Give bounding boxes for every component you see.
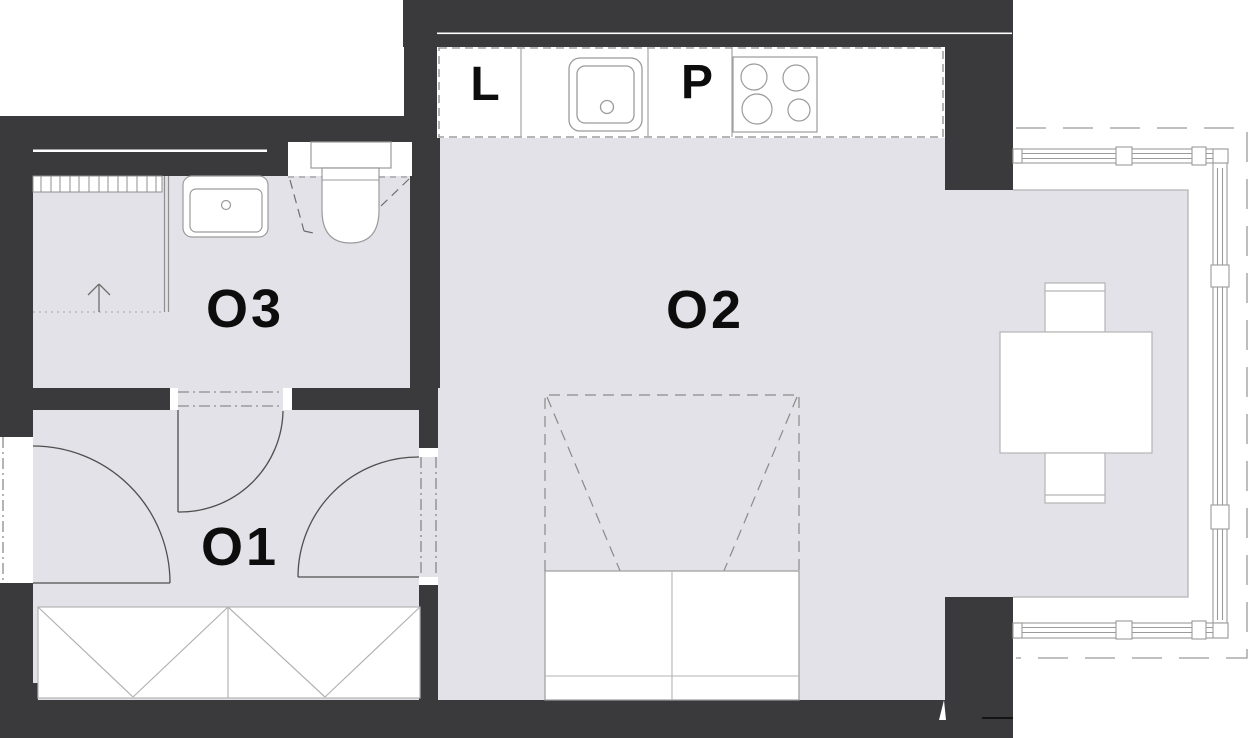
floor-plan-drawing: L P bbox=[0, 0, 1254, 738]
glazing-corner-top bbox=[1213, 149, 1228, 163]
wall-o3-o1-right bbox=[292, 388, 420, 410]
wall-seam-left bbox=[33, 150, 267, 152]
glazing-mullion-top-2 bbox=[1192, 147, 1206, 165]
wall-o1-o2-upper bbox=[419, 388, 438, 457]
wardrobe-body bbox=[38, 607, 420, 698]
glazing-right-frame bbox=[1213, 163, 1227, 623]
kitchen-sink-outer bbox=[569, 58, 642, 131]
glazing-mullion-top-1 bbox=[1116, 147, 1132, 165]
toilet-bowl bbox=[322, 168, 379, 243]
wall-bottom bbox=[0, 700, 1013, 738]
washbasin-icon bbox=[183, 176, 268, 237]
wall-o1-o2-lower bbox=[419, 585, 438, 700]
wall-top bbox=[403, 0, 1013, 47]
jamb-o3-door-left bbox=[170, 388, 178, 410]
dining-table bbox=[1000, 332, 1152, 453]
wall-left-upper bbox=[0, 116, 33, 437]
label-appliance-p: P bbox=[681, 56, 713, 109]
hob-icon bbox=[733, 57, 817, 132]
wall-right-upper bbox=[945, 0, 1013, 190]
wall-left-notch bbox=[33, 683, 38, 700]
washbasin-tap bbox=[222, 201, 231, 210]
chair-top bbox=[1045, 283, 1105, 332]
toilet-cistern bbox=[311, 142, 391, 168]
floor-opening-o1-o2 bbox=[419, 457, 438, 577]
glazing-mullion-right-2 bbox=[1211, 505, 1229, 529]
room-label-o1: O1 bbox=[201, 517, 279, 577]
jamb-o3-door-right bbox=[283, 388, 292, 410]
jamb-o2-door-top bbox=[419, 448, 438, 457]
entrance-opening bbox=[0, 437, 33, 583]
wall-inner-band bbox=[33, 152, 267, 176]
floor-plan: L P bbox=[0, 0, 1254, 738]
label-appliance-l: L bbox=[470, 58, 499, 111]
wall-niche-left-pier bbox=[267, 150, 288, 176]
room-label-o2: O2 bbox=[666, 280, 744, 340]
glazing-corner-bottom bbox=[1213, 623, 1228, 638]
kitchen-sink-drain bbox=[601, 101, 614, 114]
drain-grate bbox=[33, 176, 162, 192]
glazing-end-bottom bbox=[1013, 623, 1022, 638]
jamb-o2-door-bottom bbox=[419, 577, 438, 585]
glazing-mullion-bottom-2 bbox=[1192, 621, 1206, 639]
kitchen-sink bbox=[569, 58, 642, 131]
glazing-mullion-bottom-1 bbox=[1116, 621, 1132, 639]
wall-o3-o2 bbox=[410, 176, 440, 388]
glazing-end-top bbox=[1013, 149, 1022, 163]
wall-o3-o1-left bbox=[33, 388, 170, 410]
room-label-o3: O3 bbox=[206, 279, 284, 339]
wall-seam-top bbox=[437, 33, 1012, 35]
floor-opening-o3-o1 bbox=[178, 388, 283, 410]
wardrobe-icon bbox=[38, 607, 420, 698]
glazing-mullion-right-1 bbox=[1211, 265, 1229, 287]
